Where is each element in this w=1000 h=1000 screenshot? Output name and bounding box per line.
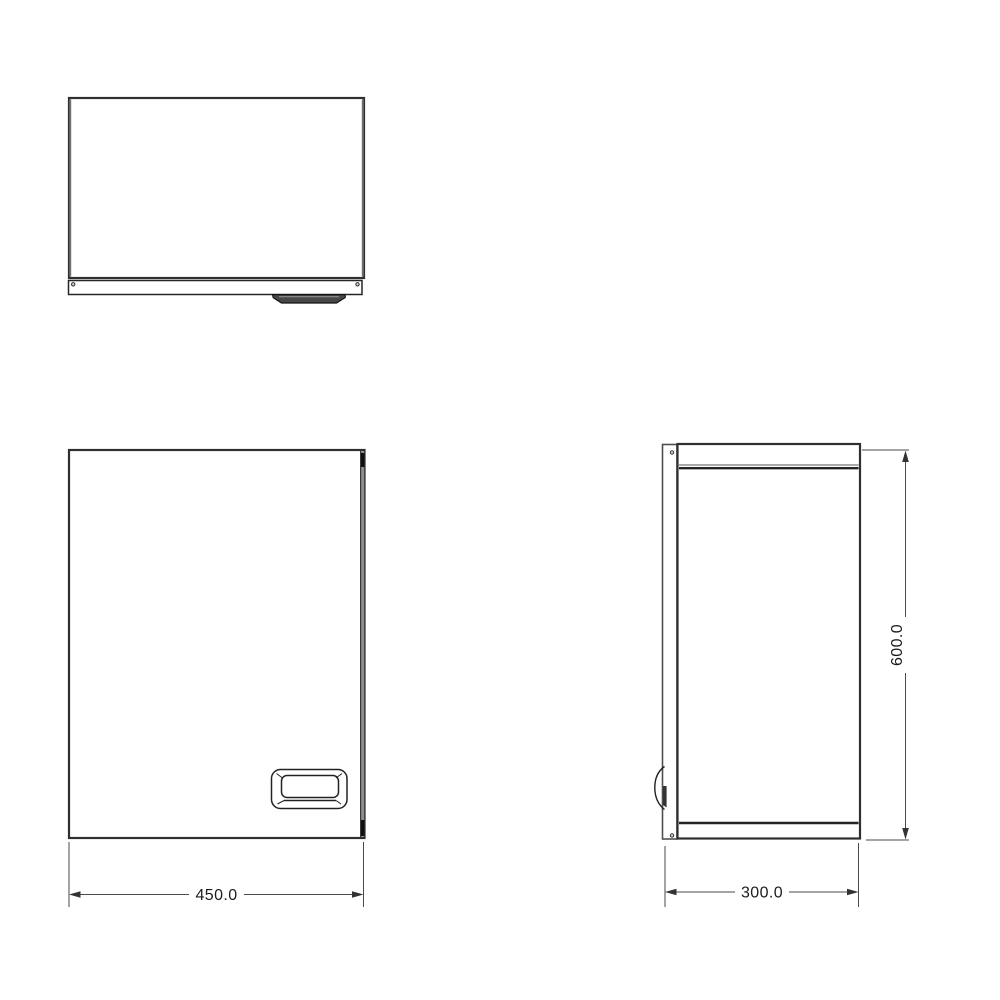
dim-depth-arrow-left: [665, 889, 677, 896]
dim-height-arrow-bottom: [902, 828, 909, 840]
side-screw-dot-bottom: [670, 834, 673, 837]
dim-depth-arrow-right: [847, 889, 859, 896]
handle-grip: [282, 776, 339, 798]
front-view-hinge-tick-bottom: [361, 820, 364, 836]
dim-depth-text: 300.0: [741, 885, 783, 902]
front-view: [69, 450, 365, 838]
dim-height-arrow-top: [902, 451, 909, 463]
dim-width-arrow-left: [69, 891, 81, 898]
side-view-handle-section: [663, 786, 667, 808]
dim-height-text: 600.0: [889, 624, 906, 666]
cad-drawing: 450.0 300.0: [0, 0, 1000, 1000]
top-view: [69, 98, 365, 303]
dim-depth: 300.0: [665, 843, 859, 907]
front-view-hinge-tick-top: [361, 453, 364, 467]
side-view-body: [678, 444, 861, 839]
top-view-handle: [273, 295, 346, 303]
dim-width-text: 450.0: [195, 887, 237, 904]
side-view: [655, 444, 860, 839]
top-view-body: [69, 98, 364, 278]
dim-height: 600.0: [862, 450, 909, 840]
top-view-door-edge: [69, 281, 363, 295]
front-view-handle: [272, 770, 348, 809]
drawing-sheet: 450.0 300.0: [0, 0, 1000, 1000]
side-view-door-strip: [663, 445, 678, 840]
dim-width: 450.0: [69, 842, 364, 907]
side-screw-dot-top: [670, 451, 673, 454]
screw-dot-right: [356, 283, 359, 286]
dim-width-arrow-right: [352, 891, 364, 898]
screw-dot-left: [72, 283, 75, 286]
